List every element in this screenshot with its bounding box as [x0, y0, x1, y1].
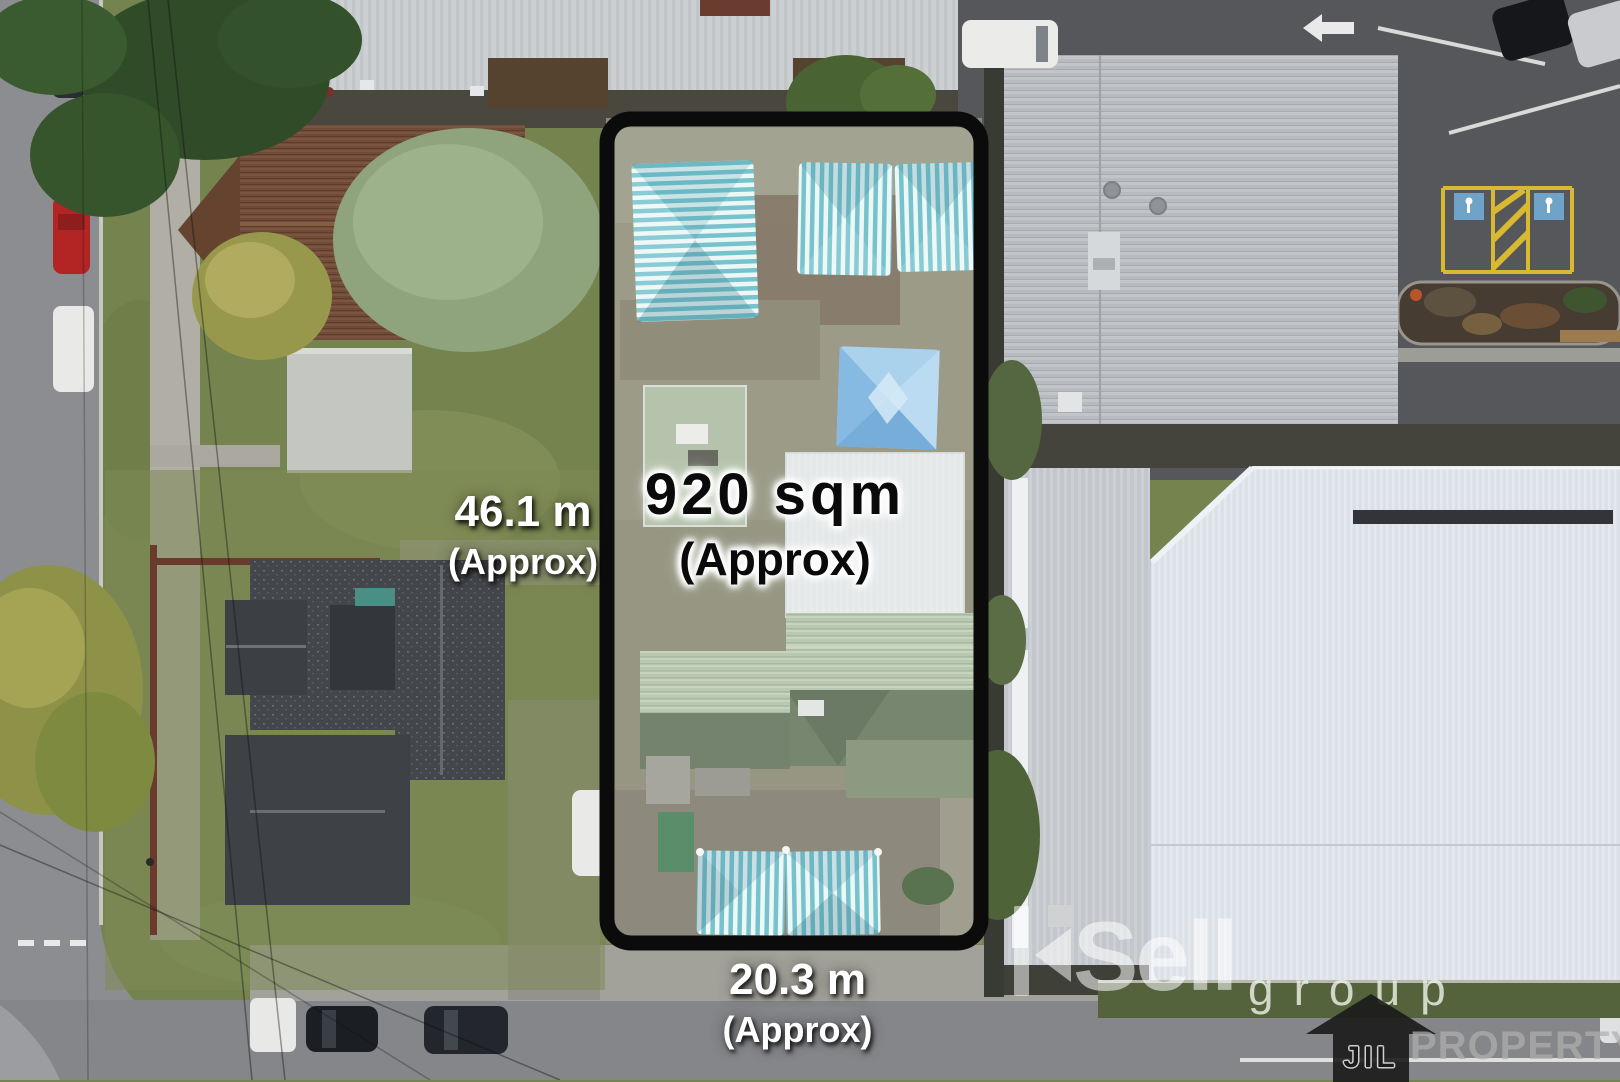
frontage-dimension-annotation: 20.3 m (Approx) — [700, 958, 895, 1048]
jil-logo-box: JIL — [1333, 1034, 1409, 1082]
isell-brand-text: Sell — [1073, 916, 1235, 996]
isell-watermark: Sell — [1014, 896, 1235, 996]
side-dimension-qualifier: (Approx) — [428, 544, 618, 580]
area-value: 920 sqm — [580, 466, 970, 524]
isell-i-stem-icon — [1014, 906, 1029, 996]
side-dimension-value: 46.1 m — [428, 490, 618, 534]
area-annotation: 920 sqm (Approx) — [580, 466, 970, 582]
power-pole — [146, 858, 154, 866]
frontage-dimension-value: 20.3 m — [700, 958, 895, 1002]
area-qualifier: (Approx) — [580, 536, 970, 582]
garden-bed — [1398, 282, 1620, 362]
isell-arrow-icon — [1035, 928, 1071, 982]
frontage-dimension-qualifier: (Approx) — [700, 1012, 895, 1048]
shadow-band — [998, 424, 1620, 468]
jil-initials: JIL — [1343, 1041, 1398, 1075]
property-logo-text: PROPERTY — [1410, 1024, 1620, 1069]
side-dimension-annotation: 46.1 m (Approx) — [428, 490, 618, 580]
